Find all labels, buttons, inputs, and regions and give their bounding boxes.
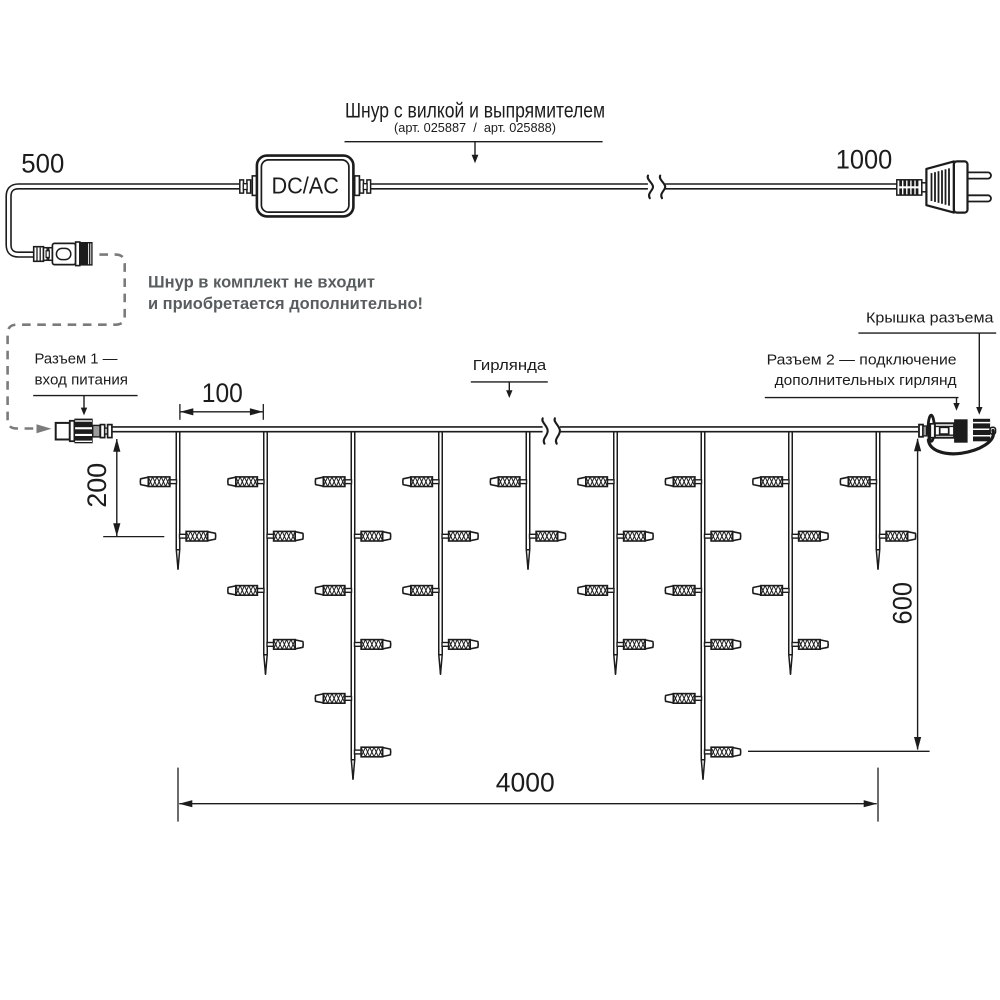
svg-text:200: 200: [82, 463, 112, 508]
svg-text:(арт. 025887 / арт. 025888): (арт. 025887 / арт. 025888): [394, 120, 556, 135]
svg-text:1000: 1000: [836, 145, 893, 175]
svg-text:600: 600: [887, 582, 917, 625]
svg-text:DC/AC: DC/AC: [271, 172, 339, 198]
svg-text:500: 500: [21, 148, 64, 178]
svg-text:100: 100: [202, 378, 243, 408]
svg-text:Крышка разъема: Крышка разъема: [866, 310, 994, 327]
svg-text:Гирлянда: Гирлянда: [473, 357, 547, 374]
svg-text:вход питания: вход питания: [35, 372, 129, 389]
svg-text:Разъем 2 — подключение: Разъем 2 — подключение: [767, 351, 957, 368]
svg-text:4000: 4000: [496, 768, 555, 798]
svg-text:Разъем 1 —: Разъем 1 —: [35, 351, 118, 368]
svg-text:и приобретается дополнительно!: и приобретается дополнительно!: [148, 294, 423, 313]
svg-text:дополнительных гирлянд: дополнительных гирлянд: [775, 372, 957, 389]
svg-text:Шнур в комплект не входит: Шнур в комплект не входит: [148, 273, 375, 292]
